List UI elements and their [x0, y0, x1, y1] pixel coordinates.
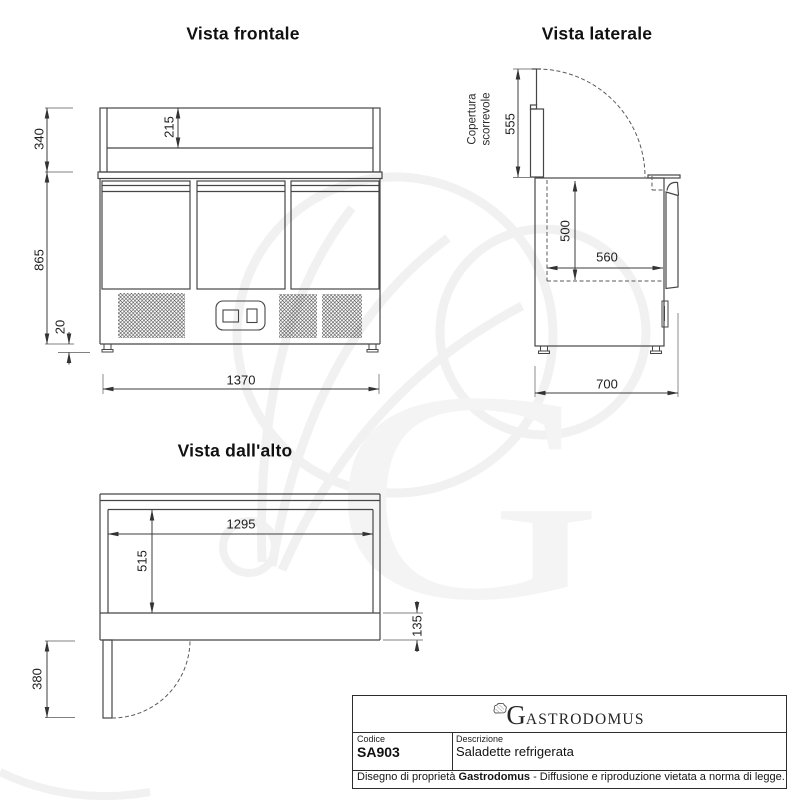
code-label: Codice: [357, 734, 385, 744]
door: [102, 181, 190, 289]
dim-label-20: 20: [54, 320, 67, 334]
top-view-title: Vista dall'alto: [178, 441, 293, 462]
foot: [651, 346, 662, 354]
sliding-cover: [531, 69, 544, 177]
description-value: Saladette refrigerata: [456, 744, 574, 759]
description-label: Descrizione: [456, 734, 503, 744]
door-swing-arc: [112, 640, 190, 718]
chef-hat-icon: [492, 702, 509, 717]
dim-label-865: 865: [33, 249, 46, 271]
dim-label-380: 380: [31, 668, 44, 690]
cover-swing-arc: [537, 69, 645, 177]
cover-label: Copertura scorrevole: [466, 92, 495, 145]
dim-label-500: 500: [559, 220, 572, 242]
watermark-hat-petal: [0, 772, 150, 796]
copyright-brand: Gastrodomus: [459, 771, 531, 783]
hinge-detail: [662, 301, 668, 327]
brand-logo: GASTRODOMUS: [352, 702, 785, 729]
control-button: [247, 309, 257, 323]
code-value: SA903: [357, 744, 400, 760]
dim-label-700: 700: [596, 378, 618, 391]
dim-label-515: 515: [136, 550, 149, 572]
vent-grille: [322, 294, 362, 338]
cover-label-line2: scorrevole: [481, 92, 493, 145]
front-view-title: Vista frontale: [186, 24, 299, 45]
cover-label-line1: Copertura: [467, 93, 479, 144]
countertop: [98, 172, 382, 179]
dim-label-340: 340: [33, 128, 46, 150]
copyright-suffix: - Diffusione e riproduzione vietata a no…: [530, 771, 785, 783]
copyright-note: Disegno di proprietà Gastrodomus - Diffu…: [357, 771, 783, 783]
title-block-divider: [353, 732, 786, 733]
dim-label-560: 560: [596, 251, 618, 264]
title-block-cell-divider: [452, 732, 453, 770]
dim-label-1370: 1370: [227, 374, 256, 387]
foot: [102, 344, 113, 352]
counter-overhang: [648, 175, 680, 178]
side-view-title: Vista laterale: [542, 24, 652, 45]
drawing-canvas: G: [0, 0, 800, 800]
vent-grille: [118, 293, 185, 338]
dim-label-135: 135: [411, 614, 424, 638]
brand-name: ASTRODOMUS: [526, 711, 645, 728]
dim-label-555: 555: [504, 113, 517, 135]
vent-grille: [279, 294, 317, 338]
display-shelf: [100, 108, 380, 172]
technical-drawing-page: G: [0, 0, 800, 800]
dim-label-1295: 1295: [227, 518, 256, 531]
copyright-prefix: Disegno di proprietà: [357, 771, 459, 783]
dim-label-215: 215: [163, 116, 176, 138]
open-door-leaf: [103, 640, 112, 718]
door-profile: [666, 182, 679, 288]
